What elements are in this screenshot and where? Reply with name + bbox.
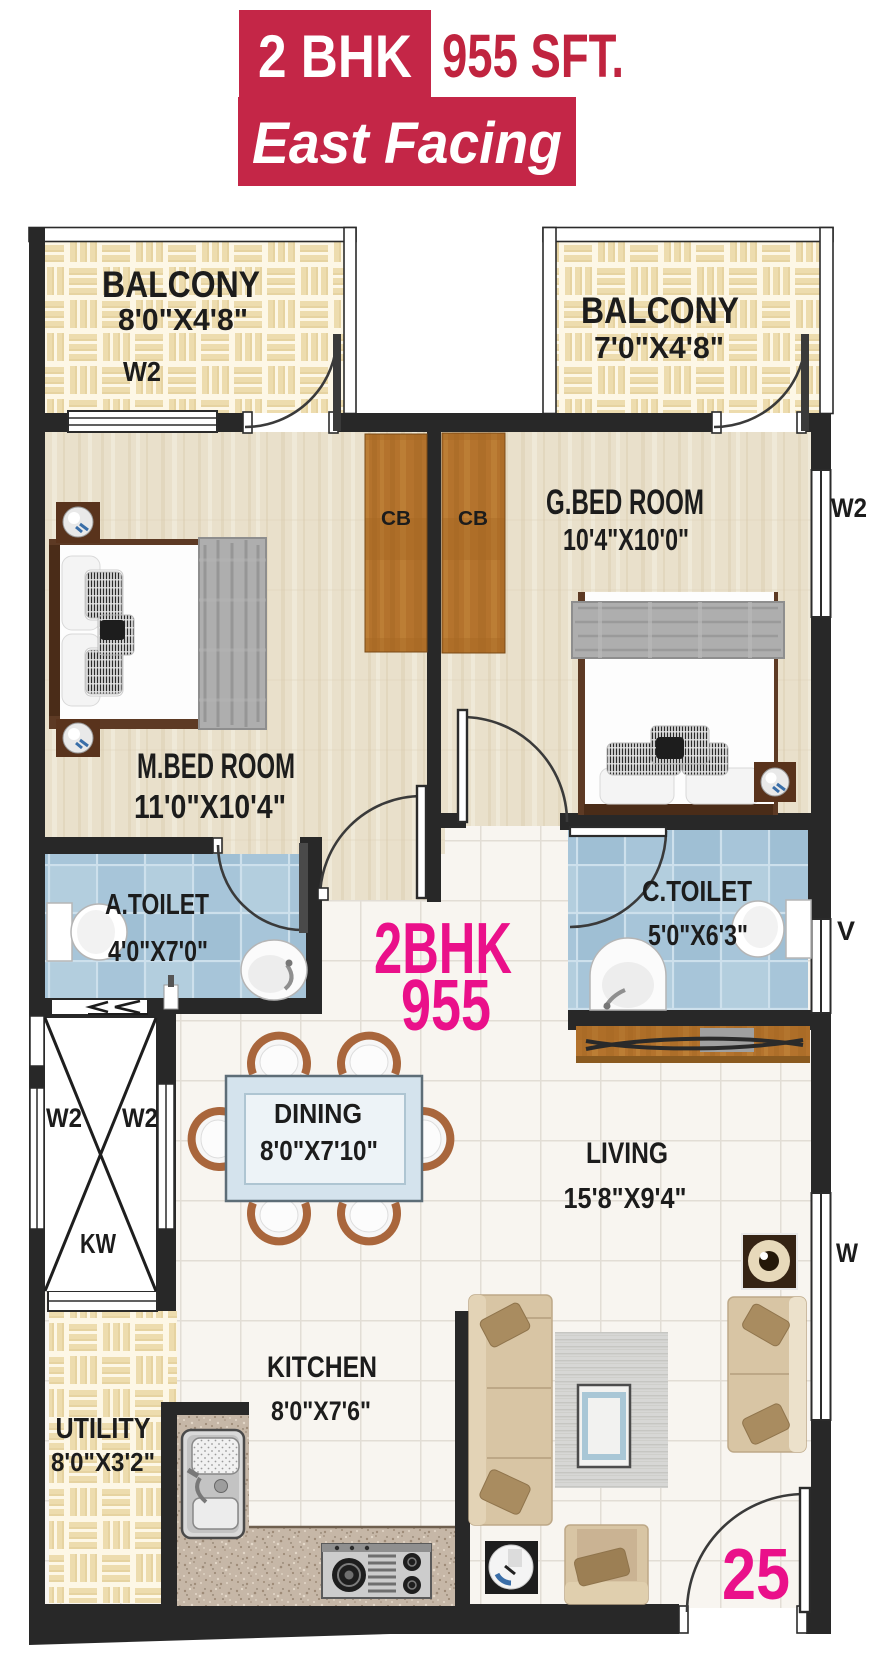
svg-text:BALCONY: BALCONY (102, 264, 260, 305)
svg-text:KW: KW (80, 1228, 116, 1259)
svg-text:G.BED ROOM: G.BED ROOM (546, 483, 704, 522)
svg-text:East Facing: East Facing (252, 111, 562, 176)
svg-text:8'0"X7'6": 8'0"X7'6" (271, 1396, 371, 1426)
svg-text:M.BED ROOM: M.BED ROOM (137, 747, 295, 786)
svg-text:955 SFT.: 955 SFT. (442, 22, 624, 90)
svg-text:W2: W2 (46, 1103, 82, 1133)
svg-text:BALCONY: BALCONY (581, 290, 739, 331)
svg-text:DINING: DINING (274, 1098, 362, 1129)
svg-text:8'0"X4'8": 8'0"X4'8" (118, 302, 248, 337)
svg-text:W2: W2 (831, 493, 867, 523)
svg-text:7'0"X4'8": 7'0"X4'8" (594, 330, 724, 365)
svg-text:15'8"X9'4": 15'8"X9'4" (564, 1183, 687, 1215)
svg-text:W2: W2 (123, 356, 161, 387)
svg-text:LIVING: LIVING (586, 1137, 668, 1170)
svg-text:CB: CB (381, 508, 411, 530)
svg-text:4'0"X7'0": 4'0"X7'0" (108, 936, 208, 968)
svg-text:10'4"X10'0": 10'4"X10'0" (563, 522, 689, 557)
svg-text:W: W (836, 1238, 858, 1268)
svg-text:5'0"X6'3": 5'0"X6'3" (648, 920, 748, 952)
svg-text:8'0"X7'10": 8'0"X7'10" (260, 1135, 378, 1166)
svg-text:955: 955 (401, 966, 491, 1046)
svg-text:8'0"X3'2": 8'0"X3'2" (51, 1447, 155, 1477)
svg-text:A.TOILET: A.TOILET (105, 889, 209, 921)
svg-text:2 BHK: 2 BHK (258, 23, 412, 90)
svg-text:11'0"X10'4": 11'0"X10'4" (134, 788, 286, 825)
svg-text:CB: CB (458, 508, 488, 530)
svg-text:25: 25 (722, 1535, 790, 1615)
svg-text:C.TOILET: C.TOILET (642, 876, 752, 908)
svg-text:UTILITY: UTILITY (56, 1413, 151, 1445)
svg-text:V: V (837, 916, 855, 946)
svg-text:W2: W2 (122, 1103, 158, 1133)
svg-text:KITCHEN: KITCHEN (267, 1351, 377, 1384)
